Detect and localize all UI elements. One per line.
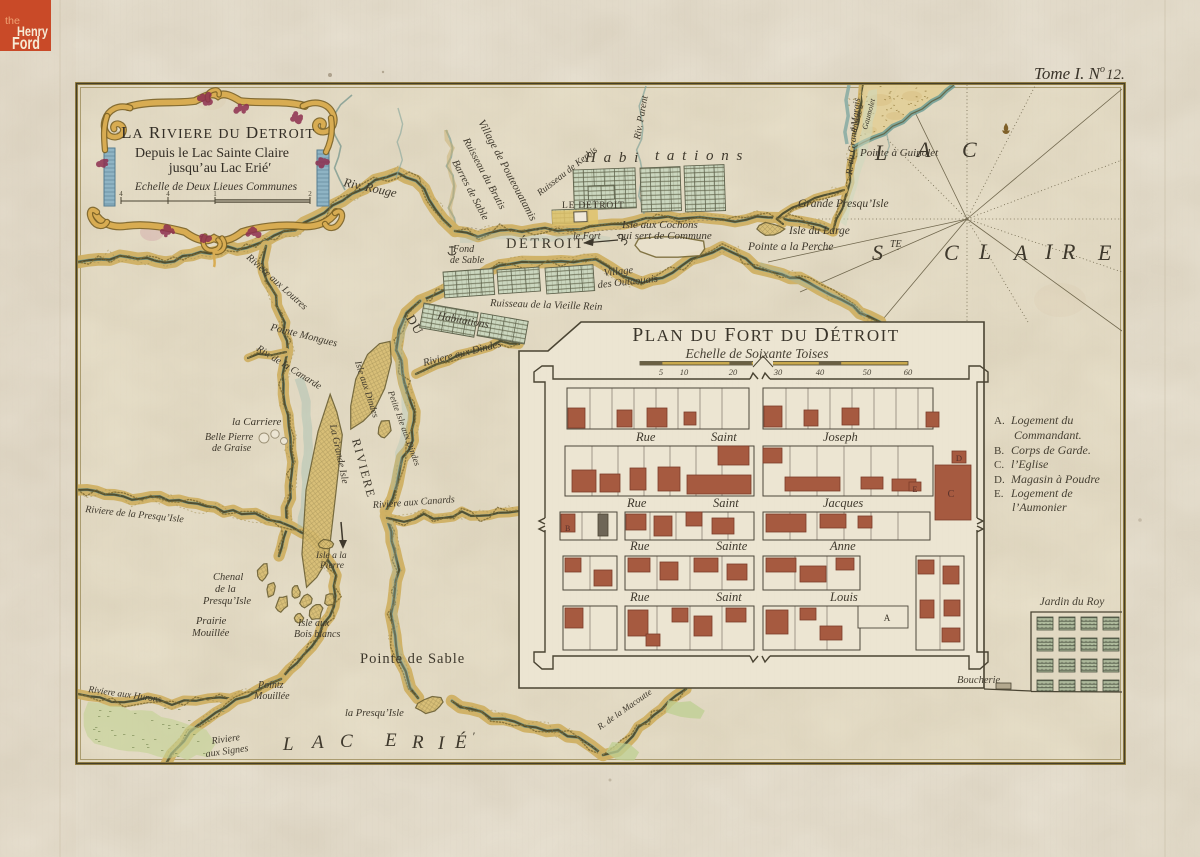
svg-text:o: o [1100,64,1105,75]
svg-text:H a b i: H a b i [584,150,640,166]
svg-text:5: 5 [659,367,663,377]
svg-text:t a t i o n s: t a t i o n s [655,148,744,164]
svg-text:S: S [872,240,883,265]
svg-text:de Graise: de Graise [212,443,252,454]
svg-text:É: É [454,731,467,753]
svg-text:Pointe a la Perche: Pointe a la Perche [747,241,833,253]
svg-text:C: C [948,489,955,500]
svg-text:Saint: Saint [711,430,737,444]
svg-text:A.: A. [994,415,1005,427]
svg-text:A: A [884,613,891,623]
svg-text:10: 10 [680,367,689,377]
svg-text:Boucherie: Boucherie [957,675,1000,686]
svg-text:′: ′ [472,729,475,743]
svg-text:Magasin à Poudre: Magasin à Poudre [1010,472,1101,486]
svg-text:E.: E. [994,488,1004,500]
svg-text:12.: 12. [1106,67,1125,83]
svg-text:C.: C. [994,459,1004,471]
svg-text:L: L [978,239,991,264]
svg-text:Chenal: Chenal [213,572,243,583]
svg-text:Rue: Rue [629,590,650,604]
svg-text:LE DETROIT: LE DETROIT [562,201,625,211]
svg-text:E: E [913,485,918,494]
svg-text:C: C [962,137,977,162]
svg-text:de Sable: de Sable [450,255,485,266]
svg-text:A: A [310,732,324,753]
svg-text:D: D [956,453,962,463]
svg-text:Isle du Large: Isle du Large [788,225,850,237]
svg-text:D.: D. [994,474,1005,486]
svg-text:A: A [915,137,931,162]
svg-text:Echelle de Soixante Toises: Echelle de Soixante Toises [684,346,828,361]
svg-text:Joseph: Joseph [823,430,858,444]
svg-text:Ford: Ford [12,33,40,53]
svg-text:Prairie: Prairie [195,616,227,627]
svg-text:Isle a la: Isle a la [315,551,347,561]
svg-text:la Presqu’Isle: la Presqu’Isle [345,708,404,719]
svg-text:4: 4 [166,190,170,198]
svg-text:4: 4 [119,190,123,198]
svg-text:qui sert de Commune: qui sert de Commune [618,230,712,242]
svg-text:1: 1 [213,190,217,198]
svg-text:Louis: Louis [829,590,858,604]
svg-text:60: 60 [904,367,913,377]
svg-text:l’Aumonier: l’Aumonier [1012,500,1067,514]
svg-text:E: E [384,730,397,751]
svg-text:Mouillée: Mouillée [253,691,290,702]
svg-text:40: 40 [816,367,825,377]
svg-text:Belle Pierre: Belle Pierre [205,432,254,443]
svg-text:Rue: Rue [635,430,656,444]
svg-text:Saint: Saint [716,590,742,604]
svg-text:TE: TE [890,239,902,250]
svg-text:L: L [874,140,887,165]
svg-text:PLAN DU FORT DU DÉTROIT: PLAN DU FORT DU DÉTROIT [632,325,899,346]
svg-text:Mouillée: Mouillée [191,628,230,639]
svg-text:Grande Presqu’Isle: Grande Presqu’Isle [798,198,889,210]
svg-text:20: 20 [729,367,738,377]
svg-text:Rue: Rue [626,496,647,510]
svg-text:Pointz: Pointz [257,680,284,691]
svg-text:B: B [565,524,570,533]
svg-text:Isle aux: Isle aux [297,618,330,629]
svg-text:jusqu’au Lac Erié′: jusqu’au Lac Erié′ [168,161,272,176]
svg-text:E: E [1097,240,1112,265]
svg-text:Commandant.: Commandant. [1014,428,1082,442]
svg-text:C: C [944,240,959,265]
svg-text:2: 2 [308,190,312,198]
svg-text:Bois blancs: Bois blancs [294,629,340,640]
svg-text:Tome I. N: Tome I. N [1034,64,1102,83]
svg-text:Logement du: Logement du [1010,413,1073,427]
svg-text:.: . [897,242,900,253]
svg-text:Saint: Saint [713,496,739,510]
svg-text:30: 30 [773,367,783,377]
svg-text:Jardin du Roy: Jardin du Roy [1040,596,1106,608]
svg-text:Corps de Garde.: Corps de Garde. [1011,443,1091,457]
svg-text:B.: B. [994,445,1004,457]
svg-text:R: R [1061,239,1076,264]
svg-text:de la: de la [215,584,236,595]
svg-text:Sainte: Sainte [716,539,748,553]
svg-text:Jacques: Jacques [823,496,863,510]
svg-text:Rue: Rue [629,539,650,553]
svg-text:C: C [340,731,353,752]
svg-text:Anne: Anne [829,539,856,553]
svg-text:la Carriere: la Carriere [232,416,282,428]
svg-text:R: R [411,732,424,753]
svg-text:A: A [1012,240,1028,265]
svg-text:Depuis le Lac Sainte Claire: Depuis le Lac Sainte Claire [135,146,289,161]
svg-text:Pointe de Sable: Pointe de Sable [360,651,465,667]
svg-text:Presqu’Isle: Presqu’Isle [202,596,251,607]
svg-text:Pierre: Pierre [319,561,344,571]
svg-text:50: 50 [863,367,872,377]
svg-text:l’Eglise: l’Eglise [1011,457,1049,471]
svg-text:Logement de: Logement de [1010,486,1073,500]
svg-text:L: L [282,734,294,755]
svg-text:DÉTROIT: DÉTROIT [506,235,586,252]
